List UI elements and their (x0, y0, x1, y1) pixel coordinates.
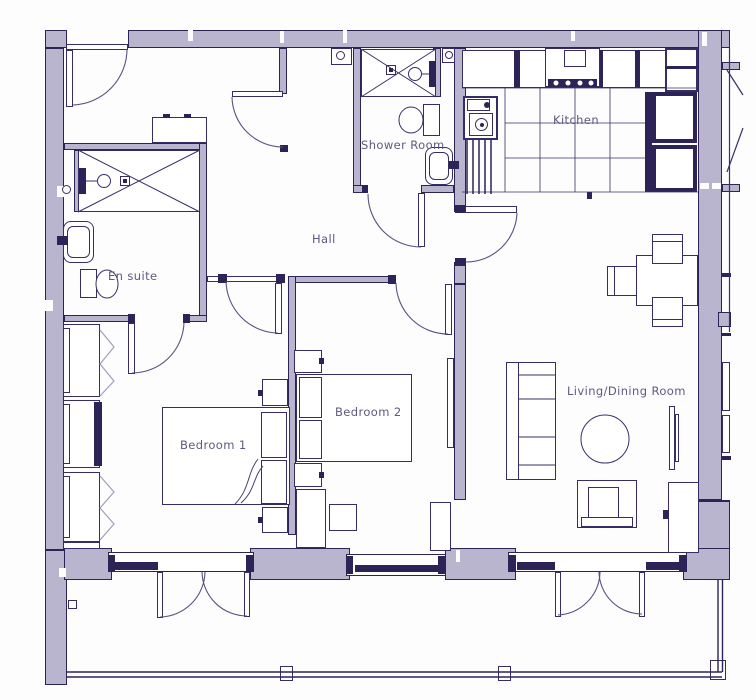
ensuite-door (128, 323, 135, 374)
shower-head-icon (408, 67, 422, 81)
shower-tray-icon (361, 49, 436, 97)
wall-junction-mark (45, 300, 53, 311)
wall-top-left (45, 30, 67, 48)
sideboard-knob (663, 510, 669, 519)
bedroom2-bedside-table (294, 463, 322, 487)
wall-junction-mark (712, 183, 721, 189)
wall-shower-left (353, 48, 361, 193)
kitchen-tall-unit-edge (645, 92, 652, 192)
room-label-bedroom1: Bedroom 1 (180, 438, 247, 452)
sideboard-icon (668, 482, 699, 553)
bedroom1-wardrobe-rail (63, 476, 70, 538)
hall-console-knob (163, 114, 170, 118)
ensuite-toilet-cistern (80, 269, 97, 298)
wall-ensuite-bottom-left (64, 315, 132, 322)
hall-detector-icon (336, 51, 345, 60)
room-label-ensuite: En suite (108, 269, 157, 283)
floor-plan: En suite Hall Shower Room Kitchen Bedroo… (0, 0, 756, 700)
wall-junction-mark (188, 30, 193, 41)
bedroom1-pillow (261, 460, 287, 504)
hall-console-unit (152, 117, 207, 143)
window-jamb (346, 556, 353, 574)
window-jamb (246, 555, 254, 572)
bedroom2-chest (430, 502, 451, 551)
balcony-wall-fitting (68, 600, 77, 609)
wall-junction-mark (280, 31, 284, 43)
wall-junction-mark (700, 183, 709, 189)
wardrobe-door-chevrons (100, 330, 114, 540)
ensuite-shower-drain-dot (123, 179, 127, 183)
bedroom1-door-jamb (276, 274, 285, 283)
living-door-jamb (455, 258, 466, 266)
bedroom2-pillow (299, 377, 322, 418)
wall-left-upper (45, 48, 64, 550)
wall-bottom-seg2 (250, 548, 350, 580)
kitchen-cabinet-divider (514, 50, 520, 88)
kitchen-boiler-pipes (467, 140, 491, 194)
ensuite-shower-head-icon (97, 174, 111, 188)
wall-junction-mark (702, 32, 707, 46)
kitchen-cooker-inner (564, 50, 586, 67)
kitchen-corner-unit-divider (665, 66, 698, 69)
bedroom2-drawers (296, 489, 326, 548)
wall-junction-mark (59, 568, 66, 577)
balcony-railing-post (710, 660, 726, 680)
kitchen-fridge-icon (652, 92, 697, 143)
ensuite-door-jamb (128, 314, 135, 323)
wall-top-main (128, 30, 730, 48)
bedroom2-window-glazing (355, 565, 439, 572)
living-french-door-left (555, 572, 561, 617)
wall-party-right (698, 30, 722, 500)
adjacent-window (722, 362, 730, 411)
kitchen-boiler-dot (484, 102, 490, 108)
bedroom2-bedside-knob (319, 472, 324, 478)
bedroom2-pillow (299, 420, 322, 459)
living-window-glazing-left (517, 562, 555, 570)
wall-ensuite-right (199, 143, 207, 322)
wall-right-strip-tick1 (722, 62, 740, 70)
wall-ensuite-top (64, 143, 207, 150)
wall-junction-mark (456, 550, 460, 562)
hall-door-jamb (280, 145, 288, 152)
living-room-door (465, 206, 517, 213)
tv-unit-icon (675, 414, 679, 462)
balcony-railing-icon (66, 580, 723, 677)
wall-bedroom2-living-divider (454, 284, 466, 500)
kitchen-freezer-icon (652, 145, 697, 192)
room-label-shower: Shower Room (361, 138, 445, 152)
wall-bottom-seg1 (64, 548, 112, 580)
living-window-glazing-right (646, 562, 681, 570)
hall-console-knob (184, 114, 191, 118)
bedroom2-stool (329, 504, 357, 531)
bedroom2-mirror-icon (447, 358, 454, 448)
shower-toilet-cistern (423, 104, 440, 136)
bedroom1-wardrobe-end-panel (63, 542, 100, 549)
bedroom1-door-jamb (218, 274, 227, 283)
room-label-bedroom2: Bedroom 2 (335, 405, 402, 419)
bedroom1-wardrobe-rail (63, 404, 70, 464)
window-jamb (438, 556, 446, 574)
bedroom1-bedside-knob (258, 390, 263, 396)
shower-vent-icon (445, 51, 453, 59)
ensuite-sink-basin (67, 226, 90, 258)
kitchen-boiler-gauge-dot (480, 123, 484, 127)
bedroom1-bedside-knob (258, 517, 263, 523)
shower-door-jamb (362, 185, 368, 193)
wall-right-strip-tick2 (722, 184, 740, 192)
shower-room-door (418, 193, 425, 247)
bedroom1-window-glazing (115, 562, 158, 570)
kitchen-corner-unit (665, 48, 698, 92)
ensuite-shower-head-bracket (79, 168, 86, 194)
ensuite-door-jamb (183, 314, 190, 323)
balcony-railing-post (280, 666, 293, 681)
room-label-hall: Hall (312, 232, 336, 246)
entrance-doorway-header (66, 44, 128, 50)
bedroom1-wardrobe-slider (94, 402, 102, 466)
room-label-kitchen: Kitchen (553, 113, 599, 127)
wall-right-strip-tick3 (718, 312, 731, 327)
living-french-door-right (639, 572, 645, 617)
bedroom2-door (445, 284, 452, 335)
kitchen-floor-tick (587, 192, 592, 199)
armchair-seat (588, 487, 619, 519)
ensuite-light-icon (62, 185, 71, 194)
dining-chair-back (652, 319, 683, 327)
window-jamb (108, 555, 115, 572)
hall-door (232, 91, 283, 97)
adjacent-tick (722, 333, 731, 336)
shower-toilet-icon (399, 107, 423, 133)
bedroom1-door (275, 283, 282, 334)
sofa-back (506, 362, 519, 480)
bedroom1-wardrobe-rail (63, 328, 70, 393)
shower-sink-basin (429, 152, 449, 180)
dining-chair-back (652, 234, 683, 242)
bedroom1-french-door-right (244, 572, 250, 617)
balcony-railing-post (498, 666, 511, 681)
bedroom2-bedside-knob (319, 358, 324, 364)
wall-hall-stub (279, 48, 287, 94)
wall-junction-mark (343, 30, 347, 43)
adjacent-tick (721, 456, 731, 460)
window-jamb (679, 555, 687, 572)
kitchen-cabinet-divider (635, 50, 640, 88)
entrance-door (66, 50, 73, 107)
bedroom1-bedside-table (262, 379, 288, 406)
wall-shower-bottom-right (421, 185, 454, 193)
shower-tap-icon (449, 161, 459, 169)
wall-junction-mark (571, 31, 575, 41)
shower-drain-dot (389, 68, 393, 72)
adjacent-tick (722, 273, 731, 277)
dining-chair-back (607, 266, 615, 296)
ensuite-tap-icon (57, 236, 68, 245)
window-jamb (508, 555, 516, 572)
bedroom1-pillow (261, 412, 287, 458)
armchair-back (581, 517, 633, 527)
wall-bedroom2-top (295, 276, 391, 283)
wall-party-right-lower (698, 500, 730, 550)
coffee-table-icon (581, 415, 629, 463)
bedroom2-bedside-table (294, 350, 322, 373)
bedroom1-french-door-left (157, 572, 163, 618)
kitchen-hob-icon (548, 79, 597, 87)
room-label-living: Living/Dining Room (567, 384, 686, 398)
shower-head-bracket (429, 61, 436, 87)
bedroom2-door-jamb (388, 275, 396, 284)
adjacent-window (722, 415, 730, 453)
bedroom1-bedside-table (262, 507, 288, 533)
